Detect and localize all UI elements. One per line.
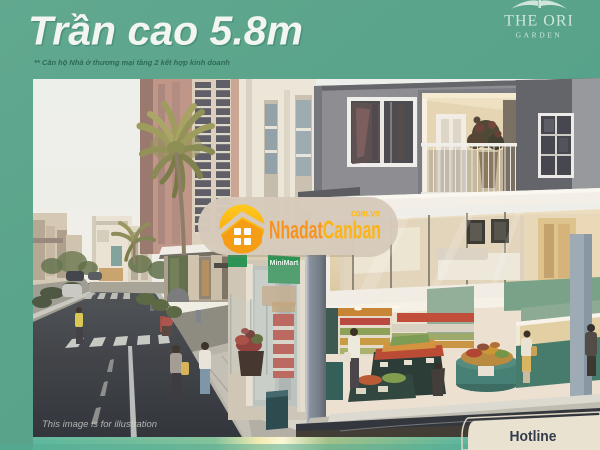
svg-text:GARDEN: GARDEN bbox=[516, 31, 563, 40]
svg-text:Trần cao 5.8m: Trần cao 5.8m bbox=[28, 8, 303, 54]
svg-text:This image is for illustration: This image is for illustration bbox=[42, 419, 157, 430]
svg-text:com.vn: com.vn bbox=[351, 209, 380, 220]
svg-text:Hotline: Hotline bbox=[510, 429, 557, 445]
svg-text:NhadatCanban: NhadatCanban bbox=[269, 217, 381, 245]
svg-text:** Căn hộ Nhà ở thương mại tần: ** Căn hộ Nhà ở thương mại tầng 2 kết hợ… bbox=[34, 58, 230, 67]
svg-text:THE ORI: THE ORI bbox=[504, 13, 574, 30]
